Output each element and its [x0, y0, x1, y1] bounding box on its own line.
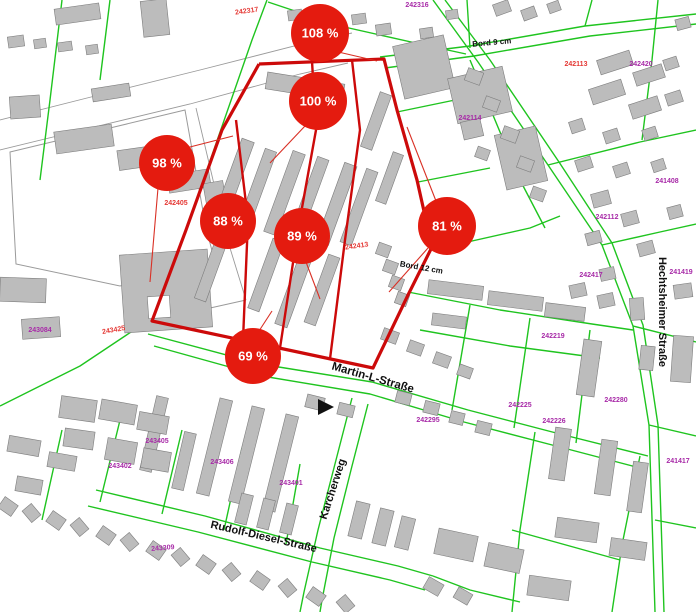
building — [603, 128, 621, 144]
building — [639, 345, 655, 370]
building — [527, 575, 571, 601]
building — [360, 92, 391, 151]
annotated-cadastral-map: 2423172423162421132424202421142414082421… — [0, 0, 696, 612]
building — [663, 56, 680, 71]
building — [394, 516, 415, 550]
building-footprints — [0, 0, 694, 612]
building — [22, 503, 41, 522]
building — [7, 35, 24, 48]
building — [419, 27, 433, 39]
building — [70, 517, 89, 536]
building — [0, 497, 18, 517]
building — [487, 291, 543, 312]
building — [547, 0, 562, 14]
building — [120, 532, 139, 551]
building — [33, 38, 46, 49]
building — [57, 41, 72, 52]
building — [627, 461, 649, 513]
parcel-number-label: 242113 — [565, 61, 588, 68]
building — [337, 402, 355, 418]
parcel-number-label: 243309 — [151, 544, 175, 553]
building — [548, 427, 571, 481]
parcel-number-label: 241408 — [655, 178, 678, 185]
building — [96, 526, 117, 546]
building — [228, 406, 264, 504]
building — [492, 0, 511, 16]
parcel-number-label: 243401 — [279, 480, 302, 487]
parcel-number-label: 242114 — [459, 115, 482, 122]
building — [222, 562, 241, 581]
building — [250, 571, 271, 591]
building — [449, 410, 465, 425]
parcel-number-label: 242226 — [542, 418, 565, 425]
building — [382, 259, 398, 275]
percent-badge: 98 % — [139, 135, 195, 191]
building — [637, 240, 656, 257]
building — [85, 44, 98, 55]
building — [594, 439, 617, 496]
flag-marker-icon — [318, 399, 334, 415]
building — [54, 124, 114, 154]
parcel-line — [548, 130, 696, 165]
building — [406, 340, 424, 356]
building — [336, 594, 355, 612]
building — [375, 23, 391, 36]
percent-badge-label: 69 % — [238, 349, 268, 364]
parcel-number-label: 243402 — [108, 463, 131, 470]
parcel-line — [42, 430, 62, 520]
building — [47, 452, 77, 472]
parcel-line — [420, 330, 600, 358]
building — [667, 204, 684, 219]
building — [590, 190, 611, 208]
building — [673, 283, 693, 299]
percent-badge: 88 % — [200, 193, 256, 249]
building — [348, 501, 370, 539]
building — [372, 508, 394, 546]
parcel-number-label: 243425 — [102, 325, 126, 336]
building — [306, 587, 327, 607]
building — [59, 396, 98, 423]
percent-badge-label: 81 % — [432, 219, 462, 234]
building — [568, 118, 585, 134]
building — [7, 435, 41, 456]
building — [445, 9, 458, 20]
building — [609, 538, 647, 561]
building — [423, 400, 440, 415]
parcel-number-label: 241419 — [669, 269, 692, 276]
percent-badge-label: 108 % — [302, 26, 339, 41]
parcel-number-label: 243405 — [145, 438, 168, 445]
building — [15, 476, 43, 495]
building — [521, 6, 538, 21]
building — [9, 95, 40, 119]
building — [544, 303, 585, 322]
building — [280, 503, 299, 535]
parcel-number-label: 241417 — [666, 458, 689, 465]
percent-badge: 81 % — [418, 197, 476, 255]
building — [675, 16, 691, 30]
building — [99, 399, 138, 425]
street-name-label: Hechtsheimer Straße — [656, 257, 668, 367]
parcel-number-label: 243406 — [210, 459, 233, 466]
parcel-line — [585, 0, 592, 26]
street-name-label: Bord 9 cm — [472, 36, 512, 48]
building — [665, 90, 684, 106]
percent-badge-label: 100 % — [300, 94, 337, 109]
building — [475, 146, 491, 161]
parcel-number-label: 242420 — [629, 61, 652, 68]
parcel-line — [397, 100, 455, 112]
percent-badge: 100 % — [289, 72, 347, 130]
percent-badge-label: 89 % — [287, 229, 317, 244]
building — [555, 517, 599, 543]
building — [196, 398, 232, 496]
parcel-number-label: 242316 — [405, 2, 428, 9]
flag-marker-icon — [318, 399, 334, 415]
building — [393, 35, 456, 99]
building — [0, 277, 46, 303]
building — [475, 420, 492, 435]
building — [196, 555, 217, 575]
building — [375, 242, 391, 258]
building — [569, 282, 587, 298]
building — [104, 438, 137, 465]
building — [91, 83, 131, 102]
city-map-canvas: 2423172423162421132424202421142414082421… — [0, 0, 696, 612]
parcel-line — [649, 425, 696, 436]
building — [629, 298, 645, 321]
badge-connector-line — [259, 311, 272, 331]
percent-badge: 69 % — [225, 328, 281, 384]
building — [257, 498, 276, 530]
building — [172, 431, 197, 490]
percent-badge-label: 98 % — [152, 156, 182, 171]
badge-connector-line — [186, 136, 233, 148]
building — [432, 352, 451, 369]
building — [588, 79, 625, 105]
street-name-label: Karcherweg — [318, 457, 349, 521]
parcel-number-label: 242225 — [508, 402, 531, 409]
parcel-number-label: 242317 — [235, 6, 259, 16]
parcel-number-label: 242280 — [604, 397, 627, 404]
building — [434, 528, 479, 562]
parcel-number-label: 243084 — [28, 327, 51, 334]
building — [670, 335, 693, 382]
building — [651, 158, 667, 172]
parcel-line — [418, 168, 490, 182]
building — [46, 511, 67, 531]
parcel-line — [100, 0, 110, 80]
badge-connector-line — [306, 262, 320, 299]
parcel-number-label: 242112 — [596, 214, 619, 221]
building — [576, 339, 602, 397]
parcel-line — [514, 318, 530, 428]
percent-badge: 108 % — [291, 4, 349, 62]
percent-badge: 89 % — [274, 208, 330, 264]
percent-badge-label: 88 % — [213, 214, 243, 229]
building — [613, 162, 631, 178]
parcel-number-label: 242219 — [541, 333, 564, 340]
parcel-line — [467, 0, 470, 48]
building — [375, 152, 403, 205]
building — [585, 230, 603, 245]
building — [278, 578, 297, 597]
parcel-number-label: 242295 — [416, 417, 439, 424]
building — [351, 13, 366, 25]
building — [597, 50, 634, 75]
parcel-line — [433, 576, 520, 602]
building — [529, 186, 546, 202]
building — [262, 414, 298, 512]
building — [597, 292, 615, 308]
building — [140, 0, 170, 37]
building — [63, 428, 95, 450]
building — [431, 313, 466, 329]
building — [621, 210, 640, 227]
parcel-number-label: 242405 — [164, 200, 187, 207]
parcel-number-label: 242417 — [579, 272, 602, 279]
